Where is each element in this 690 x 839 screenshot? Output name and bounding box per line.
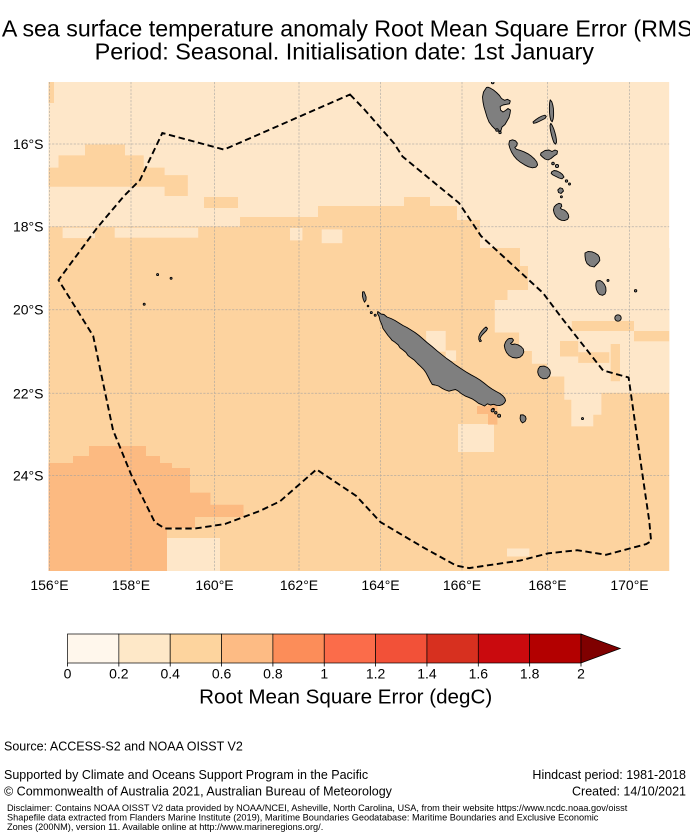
svg-text:156°E: 156°E	[30, 577, 68, 593]
svg-text:© Commonwealth of Australia 20: © Commonwealth of Australia 2021, Austra…	[4, 785, 393, 799]
svg-text:158°E: 158°E	[112, 577, 150, 593]
svg-text:160°E: 160°E	[195, 577, 233, 593]
svg-text:1.4: 1.4	[417, 666, 437, 682]
svg-text:Source: ACCESS-S2 and NOAA OIS: Source: ACCESS-S2 and NOAA OISST V2	[4, 740, 243, 754]
svg-text:0.2: 0.2	[109, 666, 129, 682]
svg-text:18°S: 18°S	[13, 219, 44, 235]
svg-text:164°E: 164°E	[361, 577, 399, 593]
svg-text:22°S: 22°S	[13, 385, 44, 401]
svg-text:1.6: 1.6	[469, 666, 489, 682]
svg-text:Created: 14/10/2021: Created: 14/10/2021	[572, 785, 686, 799]
svg-text:0.8: 0.8	[263, 666, 283, 682]
svg-text:Period: Seasonal. Initialisati: Period: Seasonal. Initialisation date: 1…	[95, 39, 595, 65]
svg-text:168°E: 168°E	[528, 577, 566, 593]
svg-text:A sea surface temperature anom: A sea surface temperature anomaly Root M…	[2, 16, 690, 42]
svg-text:2: 2	[577, 666, 585, 682]
svg-text:Zones (200NM), version 11. Ava: Zones (200NM), version 11. Available onl…	[7, 822, 323, 832]
svg-text:1.2: 1.2	[366, 666, 386, 682]
svg-text:0.4: 0.4	[160, 666, 180, 682]
svg-text:Shapefile data extracted from: Shapefile data extracted from Flanders M…	[7, 812, 599, 822]
svg-text:24°S: 24°S	[13, 468, 44, 484]
svg-text:162°E: 162°E	[280, 577, 318, 593]
svg-text:170°E: 170°E	[610, 577, 648, 593]
svg-text:1.8: 1.8	[520, 666, 540, 682]
svg-text:Disclaimer: Contains NOAA OISS: Disclaimer: Contains NOAA OISST V2 data …	[7, 803, 628, 813]
svg-text:0.6: 0.6	[212, 666, 232, 682]
svg-text:Hindcast period: 1981-2018: Hindcast period: 1981-2018	[532, 768, 686, 782]
svg-text:Root Mean Square Error (degC): Root Mean Square Error (degC)	[199, 686, 492, 709]
svg-text:16°S: 16°S	[13, 136, 44, 152]
svg-text:166°E: 166°E	[443, 577, 481, 593]
svg-text:1: 1	[320, 666, 328, 682]
svg-text:0: 0	[64, 666, 72, 682]
svg-text:Supported by Climate and Ocean: Supported by Climate and Oceans Support …	[4, 768, 368, 782]
svg-text:20°S: 20°S	[13, 302, 44, 318]
